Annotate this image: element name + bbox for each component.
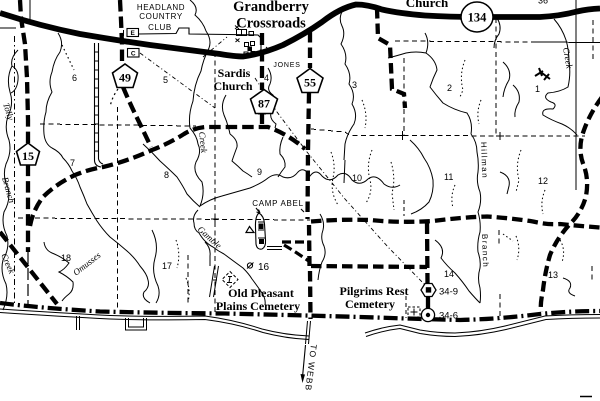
svg-text:15: 15 xyxy=(22,149,34,163)
svg-text:Crossroads: Crossroads xyxy=(236,16,306,32)
svg-text:13: 13 xyxy=(548,270,558,280)
svg-text:6: 6 xyxy=(72,73,77,83)
svg-text:Pilgrims Rest: Pilgrims Rest xyxy=(340,284,409,298)
svg-text:7: 7 xyxy=(70,158,75,168)
svg-text:2: 2 xyxy=(447,83,452,93)
svg-text:Hillman: Hillman xyxy=(479,142,489,179)
svg-text:16: 16 xyxy=(258,262,270,273)
svg-text:4: 4 xyxy=(264,73,269,83)
svg-text:87: 87 xyxy=(258,97,270,111)
svg-text:CAMP ABEL: CAMP ABEL xyxy=(252,199,304,208)
svg-text:5: 5 xyxy=(163,75,168,85)
svg-text:CLUB: CLUB xyxy=(148,23,172,32)
svg-text:11: 11 xyxy=(444,172,453,182)
svg-text:12: 12 xyxy=(538,176,548,186)
svg-text:Church: Church xyxy=(406,0,449,10)
svg-text:17: 17 xyxy=(162,261,172,271)
svg-text:49: 49 xyxy=(119,71,131,85)
svg-text:3: 3 xyxy=(352,80,357,90)
svg-text:Grandberry: Grandberry xyxy=(233,0,309,15)
svg-text:COUNTRY: COUNTRY xyxy=(139,12,183,21)
svg-text:Sardis: Sardis xyxy=(218,66,251,80)
svg-text:9: 9 xyxy=(257,167,262,177)
svg-text:1: 1 xyxy=(535,84,540,94)
svg-text:10: 10 xyxy=(352,173,362,183)
svg-text:8: 8 xyxy=(164,170,169,180)
svg-text:18: 18 xyxy=(61,253,71,263)
svg-text:Old Pleasant: Old Pleasant xyxy=(228,286,294,300)
svg-text:Cemetery: Cemetery xyxy=(345,297,395,311)
svg-text:36: 36 xyxy=(538,0,548,6)
svg-text:134: 134 xyxy=(468,11,488,25)
svg-text:Church: Church xyxy=(213,79,252,93)
svg-text:E: E xyxy=(131,30,136,37)
svg-text:Plains Cemetery: Plains Cemetery xyxy=(216,299,300,313)
svg-text:HEADLAND: HEADLAND xyxy=(137,3,185,12)
svg-text:JONES: JONES xyxy=(273,62,300,69)
svg-text:55: 55 xyxy=(304,76,316,90)
svg-text:34-9: 34-9 xyxy=(439,287,458,298)
svg-text:Branch: Branch xyxy=(480,234,490,269)
svg-text:14: 14 xyxy=(444,269,454,279)
svg-text:34-6: 34-6 xyxy=(439,311,458,322)
svg-text:C: C xyxy=(131,50,136,57)
